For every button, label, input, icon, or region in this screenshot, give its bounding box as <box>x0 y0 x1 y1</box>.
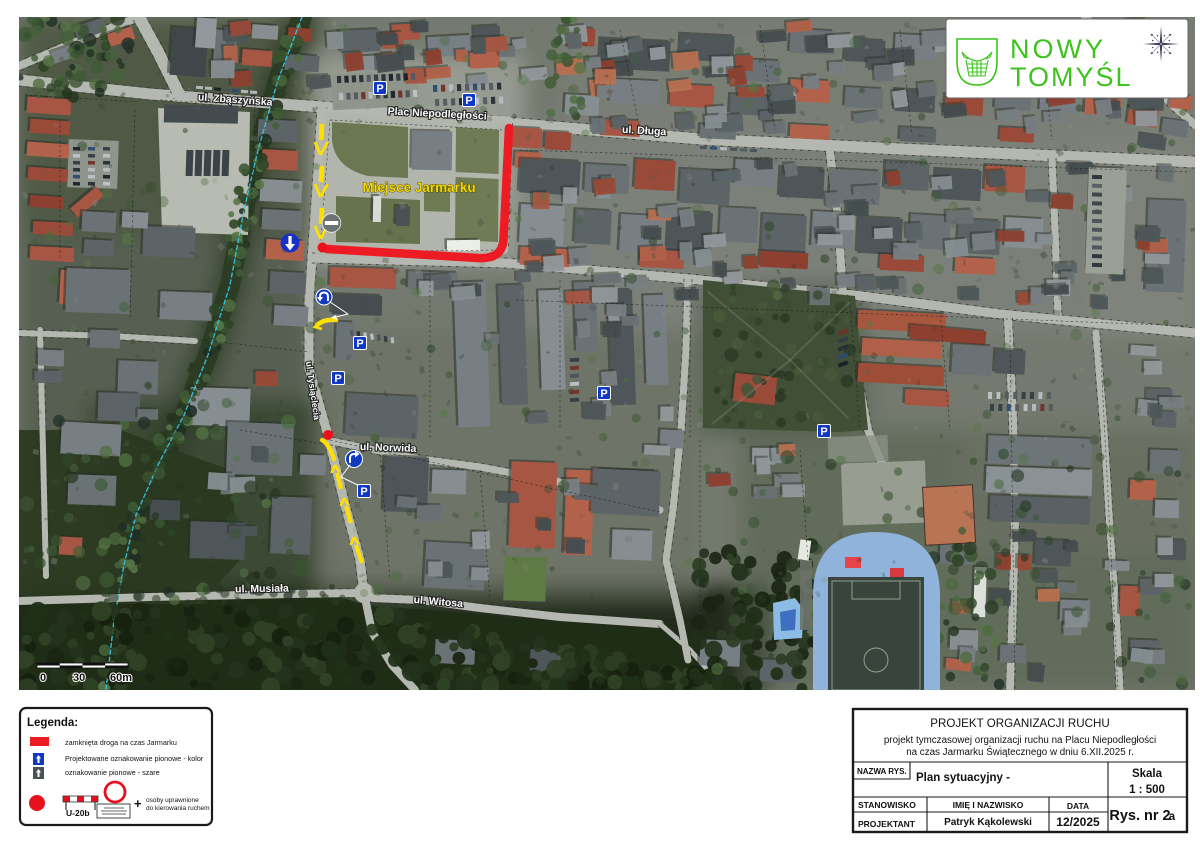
svg-text:Miejsce Jarmarku: Miejsce Jarmarku <box>362 180 475 195</box>
svg-text:zamknięta droga na czas Jarmar: zamknięta droga na czas Jarmarku <box>65 738 177 747</box>
svg-text:P: P <box>360 486 367 498</box>
svg-text:P: P <box>600 388 607 400</box>
svg-text:PROJEKT ORGANIZACJI RUCHU: PROJEKT ORGANIZACJI RUCHU <box>930 717 1110 730</box>
svg-text:ul. Długa: ul. Długa <box>622 124 667 138</box>
svg-text:P: P <box>465 95 472 107</box>
svg-text:ul. Musiała: ul. Musiała <box>235 583 289 596</box>
svg-text:PROJEKTANT: PROJEKTANT <box>858 819 916 829</box>
svg-text:0: 0 <box>40 672 46 684</box>
svg-text:Legenda:: Legenda: <box>27 717 78 729</box>
svg-text:DATA: DATA <box>1067 801 1089 811</box>
svg-text:1 : 500: 1 : 500 <box>1129 784 1165 796</box>
svg-text:na czas Jarmarku Świątecznego: na czas Jarmarku Świątecznego w dniu 6.X… <box>906 746 1134 758</box>
svg-text:NOWY: NOWY <box>1010 34 1106 64</box>
svg-text:P: P <box>376 83 383 95</box>
svg-text:Rys. nr 2: Rys. nr 2 <box>1109 808 1170 824</box>
svg-text:NAZWA RYS.: NAZWA RYS. <box>857 767 907 776</box>
svg-text:IMIĘ I NAZWISKO: IMIĘ I NAZWISKO <box>953 800 1024 810</box>
svg-text:P: P <box>334 373 341 385</box>
svg-text:projekt tymczasowej organizacj: projekt tymczasowej organizacji ruchu na… <box>884 735 1156 746</box>
svg-text:do kierowania ruchem: do kierowania ruchem <box>146 805 210 812</box>
svg-text:TOMYŚL: TOMYŚL <box>1010 60 1133 92</box>
svg-text:P: P <box>356 338 363 350</box>
svg-text:Skala: Skala <box>1132 768 1163 780</box>
svg-text:+: + <box>134 796 142 811</box>
svg-text:30: 30 <box>73 672 85 684</box>
svg-text:osoby uprawnione: osoby uprawnione <box>146 797 199 804</box>
svg-text:Patryk Kąkolewski: Patryk Kąkolewski <box>944 817 1032 828</box>
svg-text:ul. Norwida: ul. Norwida <box>360 441 417 455</box>
svg-text:STANOWISKO: STANOWISKO <box>858 800 916 810</box>
svg-text:U-20b: U-20b <box>66 808 90 818</box>
svg-text:Projektowane oznakowanie piono: Projektowane oznakowanie pionowe - kolor <box>65 754 204 763</box>
svg-text:12/2025: 12/2025 <box>1056 815 1100 829</box>
svg-text:60m: 60m <box>110 672 132 684</box>
svg-text:a: a <box>1169 811 1176 823</box>
svg-text:Plan sytuacyjny -: Plan sytuacyjny - <box>916 772 1010 784</box>
svg-text:oznakowanie pionowe - szare: oznakowanie pionowe - szare <box>65 768 160 777</box>
svg-text:P: P <box>820 426 827 438</box>
